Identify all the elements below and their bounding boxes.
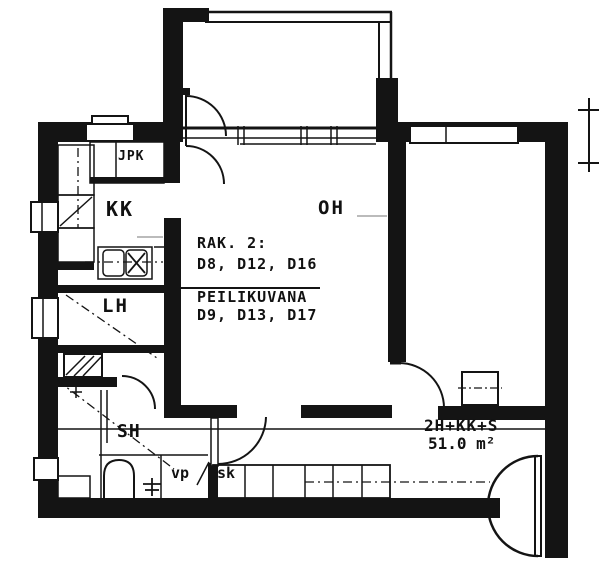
wall-right [545,125,568,558]
sauna-stove-kiuas [64,354,102,377]
balcony [163,8,398,142]
washbasin-cabinet [58,476,90,498]
apartment-area-label: 51.0 m² [428,436,495,452]
apartment-type-label: 2H+KK+S [424,418,498,434]
room-label-sh: SH [117,423,141,441]
room-label-kk: KK [106,199,134,219]
hall-door [211,417,266,466]
wall-bottom [38,498,500,518]
wall-lh-top [58,285,165,293]
annotation-line-4: D9, D13, D17 [197,308,317,323]
balcony-window-strip [183,126,378,145]
room-label-jpk: JPK [118,150,144,163]
room-label-oh: OH [318,199,345,218]
window-left-wc-vent [34,458,58,480]
floor-plan: JPK KK OH LH SH vp sk RAK. 2: D8, D12, D… [0,0,600,574]
window-top-right [398,123,520,143]
room-label-sk: sk [217,466,235,481]
balcony-rail-cap [163,8,209,22]
window-left-sauna [32,298,58,338]
party-wall-marker [578,98,599,172]
floor-drain-symbol [143,478,161,496]
doors [122,88,541,556]
wall-jpk-bottom [90,177,166,183]
wall-spine [164,218,181,418]
annotation-line-2: D8, D12, D16 [197,257,317,272]
balcony-pillar-right [376,78,398,142]
annotation-line-3: PEILIKUVANA [197,290,307,305]
wall-jpk-right [164,142,180,183]
wall-hall-top-b [301,405,392,418]
room-label-vp: vp [171,466,189,481]
window-left-kitchen [31,202,58,232]
wall-sauna-lower [58,377,117,387]
bedroom-door [390,363,444,408]
wall-hall-top-a [164,405,237,418]
toilet [104,460,134,498]
balcony-pillar-left [163,10,183,142]
sauna-door [122,376,155,409]
stove-sink-unit [98,247,164,279]
wall-oh-bedroom [388,142,406,362]
floor-plan-drawing [0,0,600,574]
kitchen-cabinet-column [58,145,94,270]
balcony-door [182,88,226,184]
room-label-lh: LH [102,297,129,316]
annotation-line-1: RAK. 2: [197,236,267,251]
window-top-left [86,116,134,141]
